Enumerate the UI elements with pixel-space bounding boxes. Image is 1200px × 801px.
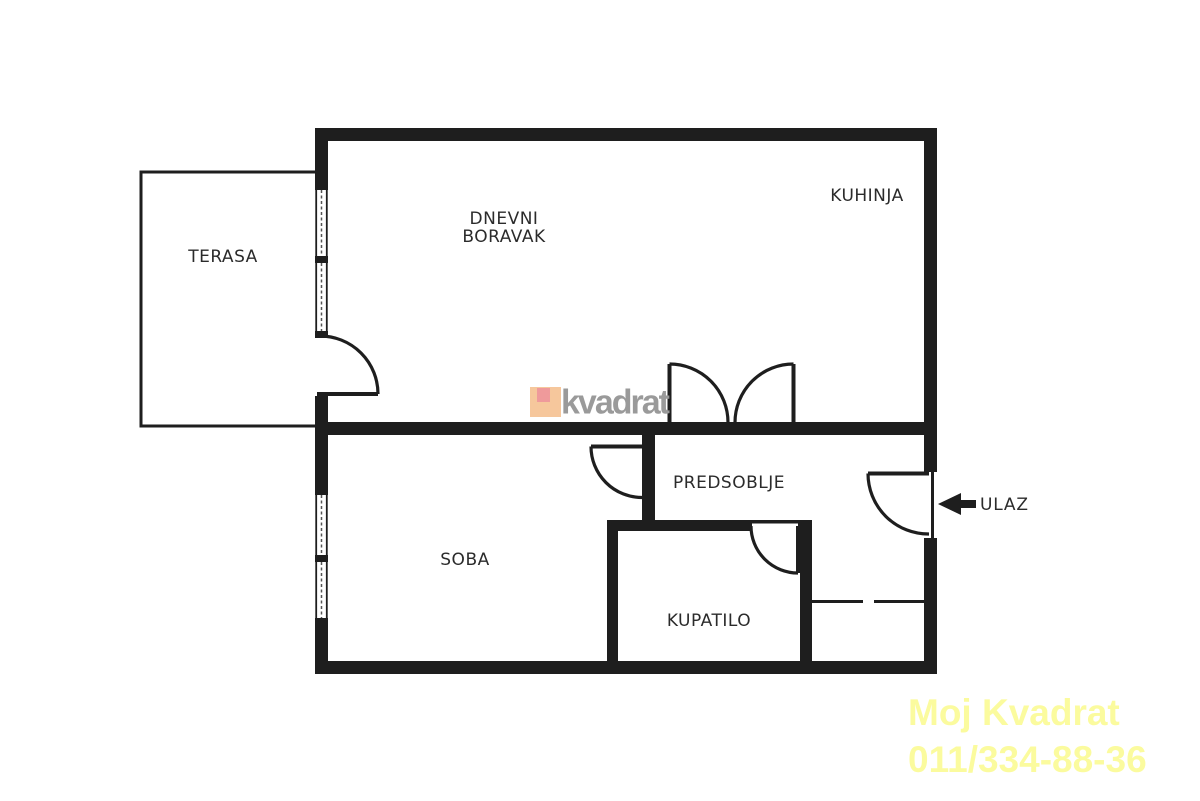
entrance-door [868, 474, 929, 535]
kvadrat-watermark-text: kvadrat [561, 384, 668, 423]
kvadrat-logo-inner-square [537, 388, 550, 402]
label-ulaz: ULAZ [980, 495, 1029, 515]
label-terasa: TERASA [188, 248, 258, 266]
wall-right-segment [924, 128, 937, 472]
wall-left-segment [315, 396, 328, 495]
label-dnevni-boravak-line2: BORAVAK [462, 228, 545, 246]
wall-left-segment [315, 618, 328, 674]
floor-plan-canvas: TERASA DNEVNI BORAVAK KUHINJA PREDSOBLJE… [0, 0, 1200, 801]
wall-kupatilo-left [607, 520, 618, 674]
nook-divider-line [874, 600, 924, 603]
entrance-threshold-line [931, 472, 934, 538]
terrace-outline [141, 172, 315, 426]
living-room-double-door [670, 364, 794, 423]
window-mullion [315, 555, 328, 562]
entrance-arrow-icon [938, 493, 976, 515]
agency-promo: Moj Kvadrat 011/334-88-36 [908, 689, 1147, 783]
label-predsoblje: PREDSOBLJE [673, 474, 785, 492]
wall-top [315, 128, 937, 141]
label-dnevni-boravak: DNEVNI BORAVAK [462, 210, 545, 246]
interior-walls [315, 422, 937, 674]
label-kuhinja: KUHINJA [830, 187, 904, 205]
label-soba: SOBA [440, 551, 489, 569]
wall-bottom [315, 661, 937, 674]
agency-phone: 011/334-88-36 [908, 736, 1147, 783]
window-mullion [315, 256, 328, 263]
wall-kupatilo-right [800, 520, 812, 674]
wall-soba-stub [642, 422, 655, 531]
wall-right-segment [924, 538, 937, 674]
soba-door [591, 447, 642, 498]
kupatilo-door-opening [752, 524, 798, 532]
label-dnevni-boravak-line1: DNEVNI [462, 210, 545, 228]
wall-left-segment [315, 128, 328, 190]
kvadrat-logo-icon [530, 387, 561, 417]
kupatilo-door [751, 526, 798, 573]
nook-divider-line [812, 600, 863, 603]
terrace-door [317, 336, 378, 394]
agency-name: Moj Kvadrat [908, 689, 1147, 736]
wall-living-divider [315, 422, 937, 435]
label-kupatilo: KUPATILO [667, 612, 751, 630]
